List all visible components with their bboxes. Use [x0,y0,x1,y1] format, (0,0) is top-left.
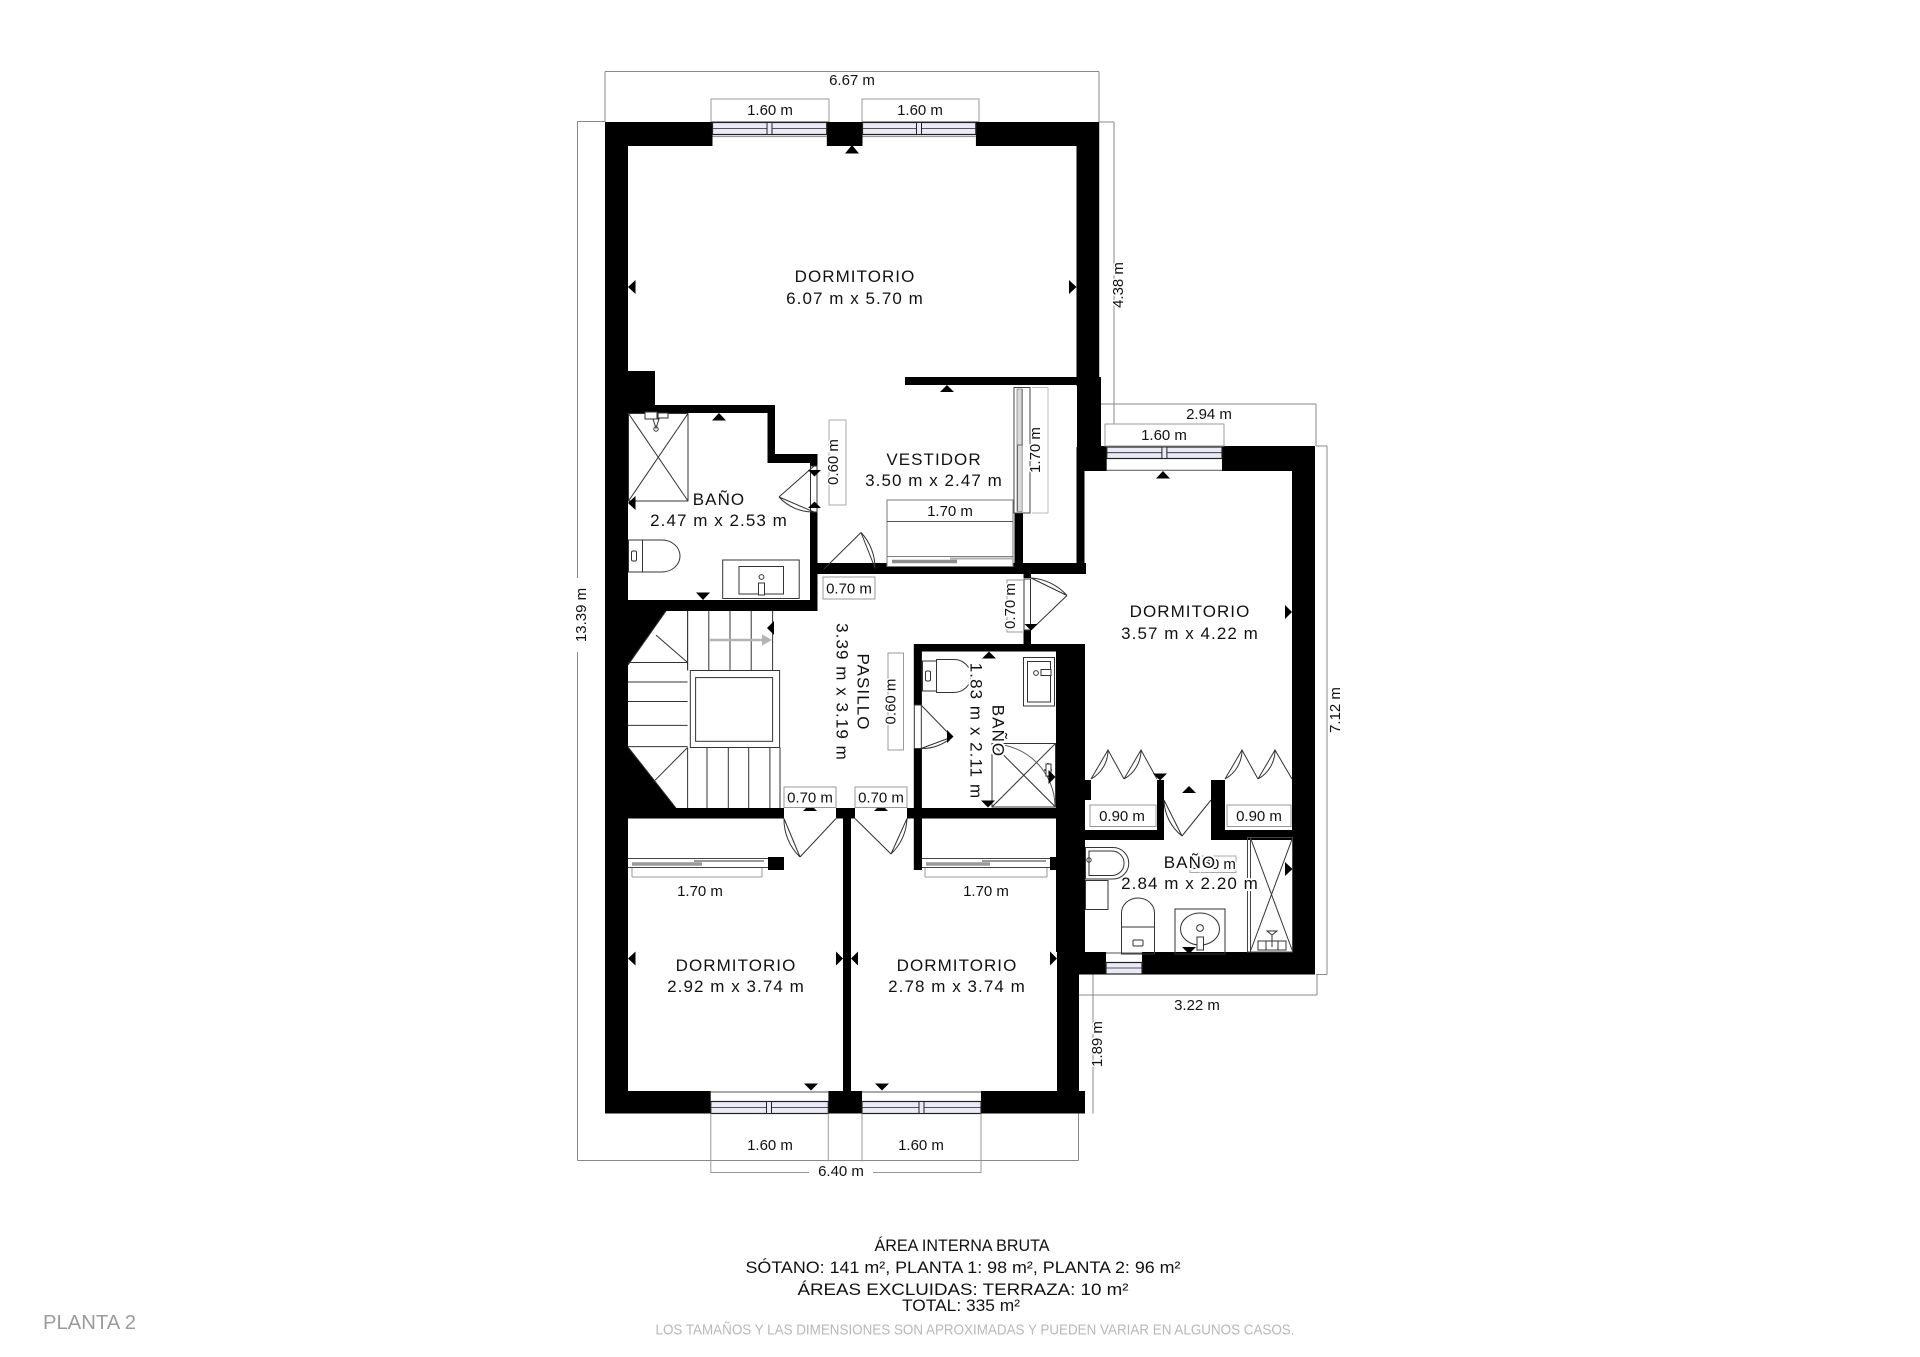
svg-text:2.84 m x 2.20 m: 2.84 m x 2.20 m [1121,874,1259,893]
svg-text:1.60 m: 1.60 m [747,1137,793,1154]
svg-text:LOS TAMAÑOS Y LAS DIMENSIONES: LOS TAMAÑOS Y LAS DIMENSIONES SON APROXI… [656,1322,1295,1339]
svg-text:1.70 m: 1.70 m [927,503,973,520]
svg-text:0.70 m: 0.70 m [826,581,872,598]
svg-text:BAÑO: BAÑO [693,490,745,509]
svg-text:0.70 m: 0.70 m [787,790,833,807]
svg-text:PASILLO: PASILLO [854,654,873,731]
svg-text:2.47 m x 2.53 m: 2.47 m x 2.53 m [650,511,788,530]
svg-text:0.70 m: 0.70 m [1002,583,1019,629]
svg-text:DORMITORIO: DORMITORIO [795,267,916,286]
svg-text:SÓTANO: 141 m², PLANTA 1: 98 m: SÓTANO: 141 m², PLANTA 1: 98 m², PLANTA … [746,1258,1181,1277]
svg-text:1.83 m x 2.11 m: 1.83 m x 2.11 m [967,663,986,799]
svg-text:ÁREA INTERNA BRUTA: ÁREA INTERNA BRUTA [875,1236,1051,1255]
svg-text:1.60 m: 1.60 m [897,102,943,119]
svg-text:6.40 m: 6.40 m [818,1163,864,1180]
svg-text:1.60 m: 1.60 m [898,1137,944,1154]
svg-text:1.60 m: 1.60 m [747,102,793,119]
svg-text:0.60 m: 0.60 m [883,679,900,725]
svg-text:1.70 m: 1.70 m [677,883,723,900]
svg-text:1.89 m: 1.89 m [1089,1021,1106,1067]
svg-text:6.07 m x 5.70 m: 6.07 m x 5.70 m [786,289,924,308]
svg-text:13.39 m: 13.39 m [573,588,590,642]
svg-text:7.12 m: 7.12 m [1327,687,1344,733]
svg-text:0.60 m: 0.60 m [825,439,842,485]
svg-text:6.67 m: 6.67 m [829,72,875,89]
svg-text:0.90 m: 0.90 m [1236,808,1282,825]
svg-text:1.60 m: 1.60 m [1141,427,1187,444]
svg-text:DORMITORIO: DORMITORIO [897,956,1018,975]
svg-text:VESTIDOR: VESTIDOR [886,450,981,469]
svg-text:2.92 m x 3.74 m: 2.92 m x 3.74 m [667,977,805,996]
svg-text:3.39 m x 3.19 m: 3.39 m x 3.19 m [833,623,852,761]
svg-text:PLANTA 2: PLANTA 2 [43,1311,136,1334]
svg-text:3.22 m: 3.22 m [1174,997,1220,1014]
svg-text:1.70 m: 1.70 m [963,883,1009,900]
svg-text:BAÑO: BAÑO [1164,853,1216,872]
svg-text:0.70 m: 0.70 m [858,790,904,807]
svg-text:1.70 m: 1.70 m [1027,427,1044,473]
svg-text:2.94 m: 2.94 m [1186,406,1232,423]
svg-text:2.78 m x 3.74 m: 2.78 m x 3.74 m [888,977,1026,996]
svg-text:3.50 m x 2.47 m: 3.50 m x 2.47 m [865,471,1003,490]
svg-text:DORMITORIO: DORMITORIO [676,956,797,975]
svg-text:0.90 m: 0.90 m [1099,808,1145,825]
svg-text:4.38 m: 4.38 m [1110,262,1127,308]
svg-text:DORMITORIO: DORMITORIO [1130,602,1251,621]
svg-text:3.57 m x 4.22 m: 3.57 m x 4.22 m [1121,624,1259,643]
svg-text:BAÑO: BAÑO [989,705,1008,757]
svg-text:TOTAL: 335 m²: TOTAL: 335 m² [902,1296,1020,1315]
